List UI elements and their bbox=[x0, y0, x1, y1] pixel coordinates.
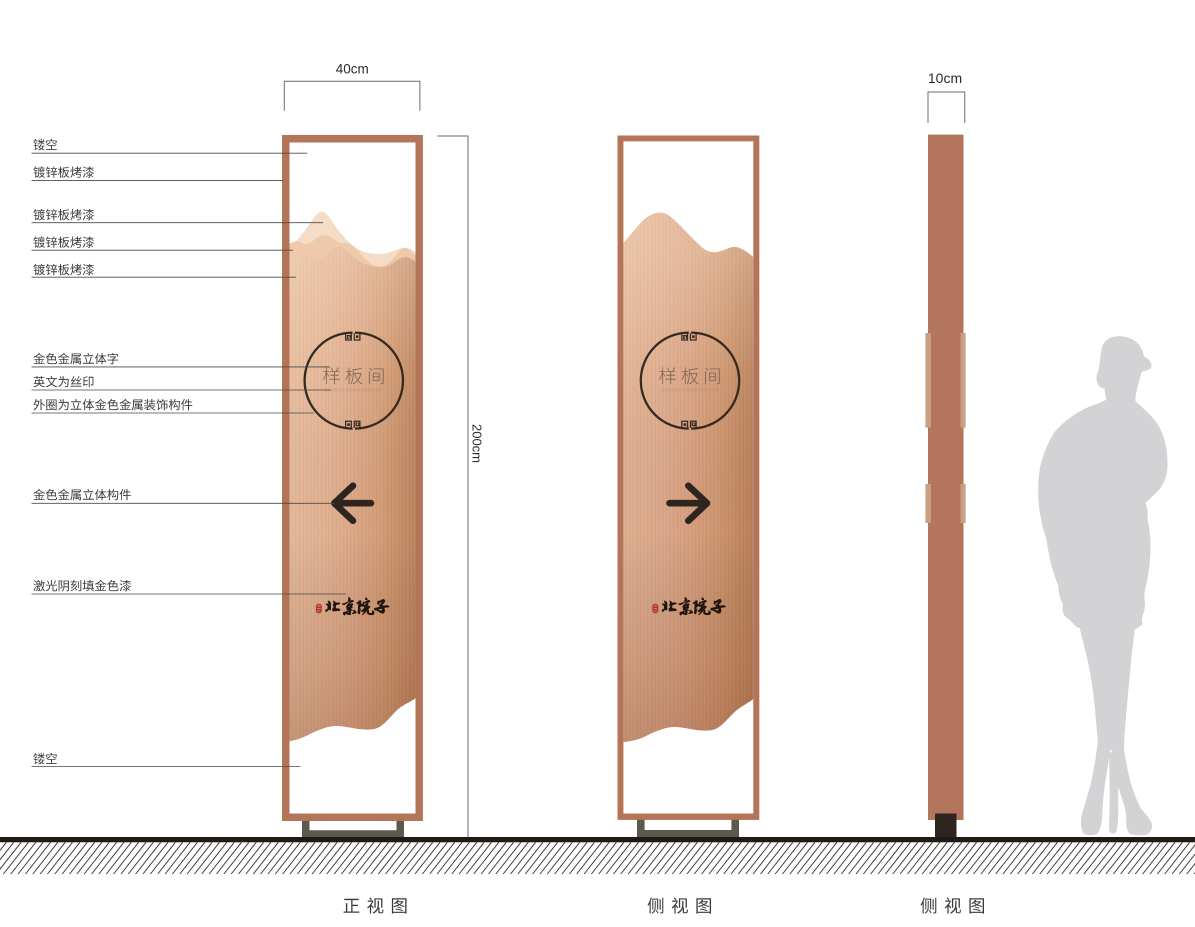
svg-text:10cm: 10cm bbox=[928, 70, 962, 86]
svg-text:40cm: 40cm bbox=[336, 61, 369, 76]
svg-text:SAMPLE ROOM DISPLAY: SAMPLE ROOM DISPLAY bbox=[325, 388, 383, 393]
svg-text:200cm: 200cm bbox=[469, 424, 484, 463]
